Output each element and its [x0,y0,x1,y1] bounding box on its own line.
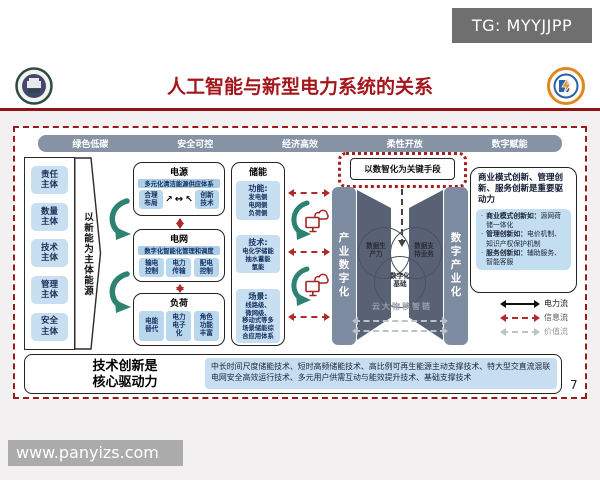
key-means-box: 以数智化为关键手段 [350,158,455,180]
venn-label-foundation: 数字化 基础 [384,272,416,288]
storage-functions: 功能: 发电侧 电网侧 负荷侧 [236,181,280,220]
info-flow-arrow-icon [502,317,538,319]
up-right-arrow-icon: ↗ [165,195,173,205]
characteristic-green: 绿色低碳 [72,137,108,150]
subject-management: 管理 主体 [31,276,68,304]
subjects-panel: 责任 主体 数量 主体 技术 主体 管理 主体 安全 主体 [24,157,75,350]
chip-power-transfer: 电力 传输 [166,258,191,277]
innovation-panel-list: ·商业模式创新如：源网荷储一体化 ·管理创新如：电价机制、知识产权保护机制 ·服… [476,209,571,270]
characteristic-economic: 经济高效 [282,137,318,150]
page-title: 人工智能与新型电力系统的关系 [100,72,500,99]
chip-distribution-control: 配电 控制 [194,258,219,277]
legend-power-flow: 电力流 [502,298,568,309]
cloud-bigdata-label: 云大物移智链 [372,301,432,312]
power-flow-arrow-icon [502,303,538,305]
value-flow-arrow-icon [502,331,538,333]
chip-innovation: 创新 技术 [195,190,219,209]
technology-innovation-body: 中长时间尺度储能技术、短时高频储能技术、高比例可再生能源主动支撑技术、特大型交直… [205,358,557,389]
chip-transmission-control: 输电 控制 [139,258,164,277]
info-flow-arrow [290,192,328,194]
chip-electric-substitution: 电能 替代 [139,311,164,341]
storage-title: 储能 [232,165,284,178]
monitor-cloud-icon [305,210,331,235]
value-flow-arrow [354,330,446,332]
header-divider [0,108,600,111]
power-source-title: 电源 [134,165,224,178]
info-flow-arrow [179,285,181,292]
legend-info-flow: 信息流 [502,312,568,323]
innovation-panel: 商业模式创新、管理创新、服务创新是重要驱动力 ·商业模式创新如：源网荷储一体化 … [470,167,577,293]
university-logo-icon [15,67,53,105]
green-cycle-arrow-icon [103,270,133,312]
characteristic-flexible: 柔性开放 [387,137,423,150]
double-arrow-icon: ↔ [175,194,183,205]
legend-value-flow: 价值流 [502,326,568,337]
power-source-bar: 多元化清洁能源供应体系 [138,179,220,188]
characteristic-safe: 安全可控 [177,137,213,150]
chip-layout: 合理 布局 [139,190,163,209]
green-cycle-arrow-icon [103,197,133,239]
list-item: ·管理创新如：电价机制、知识产权保护机制 [480,230,567,248]
chip-role-functions: 角色 功能 丰富 [194,311,219,341]
power-grid-box: 电网 数字化智能化管理和调度 输电 控制 电力 传输 配电 控制 [133,229,225,282]
list-item: ·商业模式创新如：源网荷储一体化 [480,212,567,230]
venn-label-productivity: 数据生 产力 [360,242,392,258]
up-left-arrow-icon: ↖ [185,195,193,205]
page-number: 7 [570,378,578,392]
info-flow-arrow [179,219,181,228]
info-flow-arrow [290,251,328,253]
subject-quantity: 数量 主体 [31,203,68,231]
storage-technologies: 技术: 电化学储能 抽水蓄能 氢能 [236,235,280,274]
venn-label-business: 数据支 持业务 [408,242,440,258]
new-energy-subject-label: 以新能为主体能源 [78,163,96,345]
load-box: 负荷 电能 替代 电力 电子 化 角色 功能 丰富 [133,293,225,346]
technology-innovation-title: 技术创新是 核心驱动力 [35,359,215,392]
subject-responsibility: 责任 主体 [31,166,68,194]
monitor-cloud-icon [305,274,331,299]
association-logo-icon [547,67,585,105]
power-grid-bar: 数字化智能化管理和调度 [138,246,220,255]
load-title: 负荷 [134,296,224,309]
innovation-panel-title: 商业模式创新、管理创新、服务创新是重要驱动力 [471,168,576,209]
subject-technology: 技术 主体 [31,239,68,267]
tg-watermark-badge: TG: MYYJJPP [452,8,592,43]
site-watermark: www.panyizs.com [8,440,183,466]
list-item: ·服务创新如：辅助服务、智能客服 [480,249,567,267]
characteristic-digital: 数字赋能 [492,137,528,150]
value-flow-arrow [354,320,446,322]
chip-power-electronics: 电力 电子 化 [166,311,191,341]
characteristics-bar: 绿色低碳 安全可控 经济高效 柔性开放 数字赋能 [38,135,562,152]
storage-box: 储能 功能: 发电侧 电网侧 负荷侧 技术: 电化学储能 抽水蓄能 氢能 场景:… [231,162,285,346]
subject-safety: 安全 主体 [31,313,68,341]
power-source-box: 电源 多元化清洁能源供应体系 合理 布局 ↗ ↔ ↖ 创新 技术 [133,162,225,216]
power-grid-title: 电网 [134,232,224,245]
storage-scenarios: 场景: 线路级、 微网级、 移动式等多 场景储能综 合应用体系 [236,289,280,343]
info-flow-arrow [290,316,328,318]
